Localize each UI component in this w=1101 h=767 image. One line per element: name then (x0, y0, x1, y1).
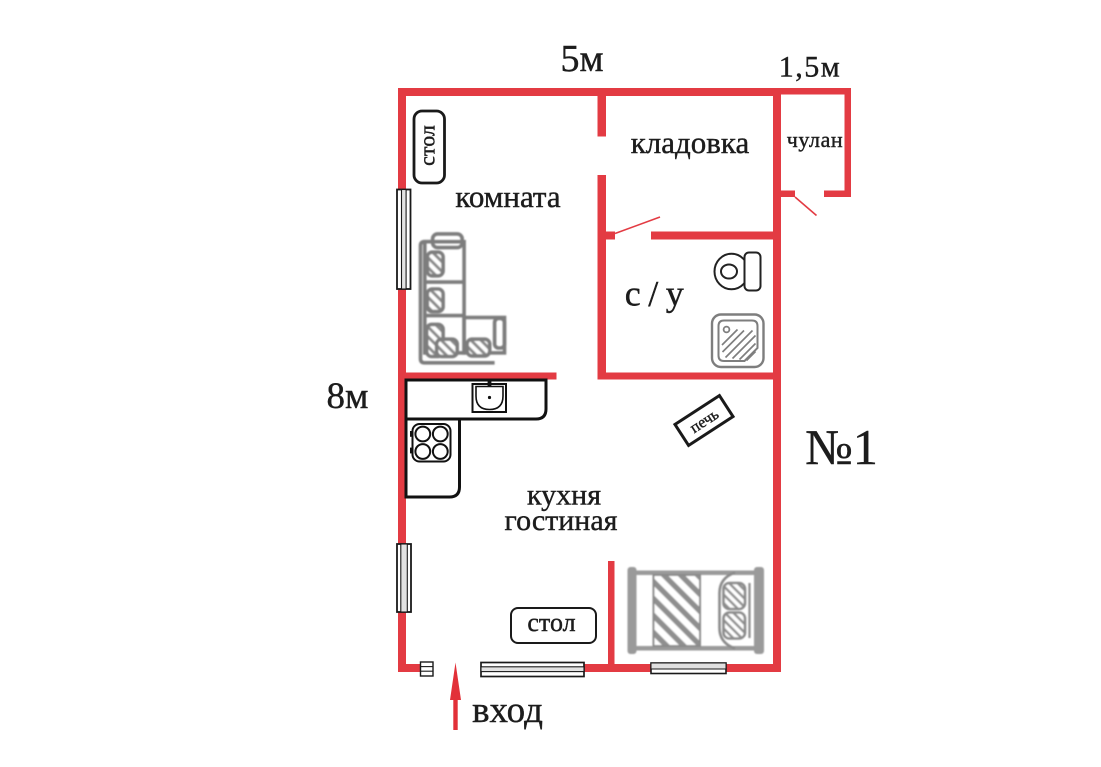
svg-text:стол: стол (415, 125, 440, 166)
svg-text:с/у: с/у (625, 274, 691, 314)
svg-text:чулан: чулан (787, 127, 844, 152)
svg-text:вход: вход (472, 690, 543, 731)
svg-text:кладовка: кладовка (631, 125, 750, 160)
svg-text:5м: 5м (560, 38, 603, 80)
svg-text:1,5м: 1,5м (779, 51, 841, 84)
svg-text:гостиная: гостиная (505, 504, 618, 537)
svg-text:комната: комната (455, 179, 560, 214)
svg-text:8м: 8м (327, 376, 369, 417)
svg-text:№1: №1 (805, 419, 878, 475)
svg-text:стол: стол (527, 608, 575, 637)
